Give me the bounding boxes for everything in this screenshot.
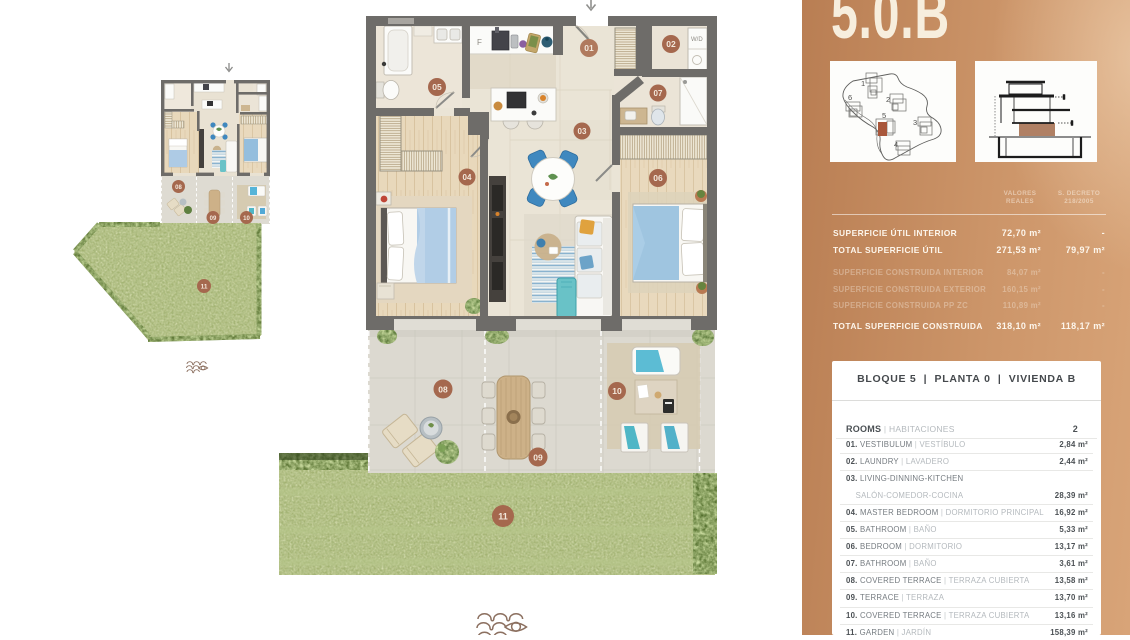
svg-text:4: 4 bbox=[894, 140, 898, 149]
svg-text:6: 6 bbox=[848, 93, 852, 102]
svg-text:07: 07 bbox=[654, 89, 663, 98]
svg-text:1: 1 bbox=[861, 79, 865, 88]
svg-text:03: 03 bbox=[578, 127, 587, 136]
svg-text:08: 08 bbox=[438, 384, 448, 394]
svg-text:2: 2 bbox=[886, 95, 890, 104]
svg-text:5: 5 bbox=[882, 111, 886, 120]
svg-text:10: 10 bbox=[612, 386, 622, 396]
svg-text:01: 01 bbox=[584, 43, 594, 53]
svg-text:F: F bbox=[477, 38, 482, 47]
svg-text:02: 02 bbox=[666, 39, 676, 49]
svg-text:3: 3 bbox=[913, 118, 917, 127]
svg-text:09: 09 bbox=[533, 452, 543, 462]
svg-text:11: 11 bbox=[201, 284, 208, 291]
svg-text:11: 11 bbox=[498, 512, 508, 522]
svg-text:09: 09 bbox=[210, 216, 217, 222]
svg-text:10: 10 bbox=[243, 216, 250, 222]
svg-text:08: 08 bbox=[175, 185, 182, 191]
svg-text:05: 05 bbox=[432, 82, 442, 92]
svg-text:W/D: W/D bbox=[691, 37, 703, 43]
svg-text:04: 04 bbox=[463, 173, 472, 182]
svg-text:06: 06 bbox=[653, 173, 663, 183]
